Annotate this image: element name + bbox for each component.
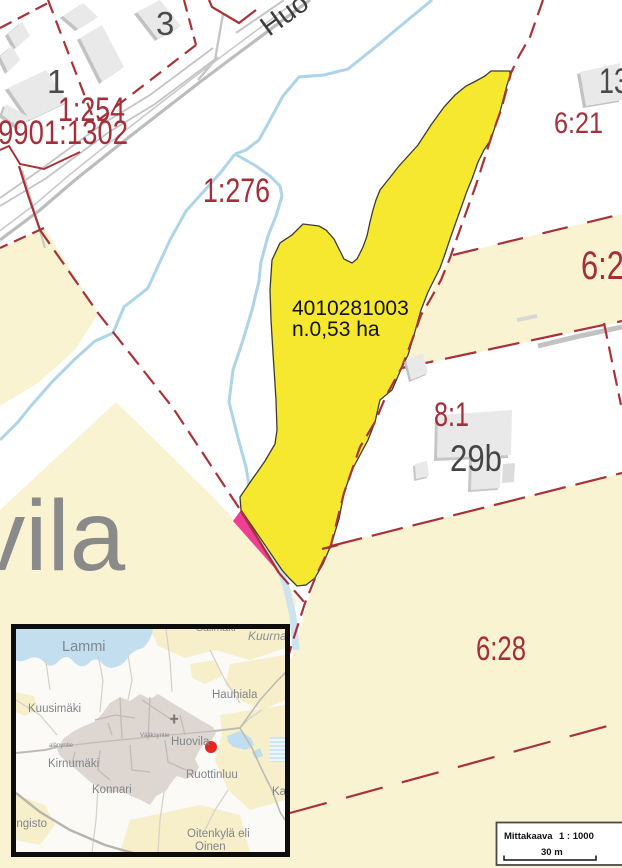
svg-text:1:276: 1:276 [203,172,270,210]
svg-text:Lammi: Lammi [62,639,106,655]
svg-text:Oitenkylä eli: Oitenkylä eli [187,828,250,840]
svg-text:6:27: 6:27 [581,244,622,288]
svg-text:Hauhiala: Hauhiala [212,689,258,701]
svg-text:Oinen: Oinen [195,841,226,853]
svg-text:alänyntie: alänyntie [49,743,74,749]
svg-text:30 m: 30 m [541,847,563,858]
svg-text:1 : 1000: 1 : 1000 [559,831,594,842]
svg-text:Mittakaava: Mittakaava [504,831,553,842]
svg-text:Huovila: Huovila [171,736,210,748]
svg-text:3: 3 [156,5,174,42]
svg-text:29b: 29b [450,438,502,479]
svg-text:Kuusimäki: Kuusimäki [28,703,81,715]
svg-text:Vääksyntie: Vääksyntie [140,733,170,739]
svg-text:Ruottinluu: Ruottinluu [186,769,238,781]
svg-text:9901:1302: 9901:1302 [0,114,128,152]
svg-text:Konnari: Konnari [92,784,132,796]
svg-text:8:1: 8:1 [434,396,469,434]
svg-text:13: 13 [599,62,622,101]
svg-text:Kirnumäki: Kirnumäki [48,758,99,770]
svg-text:uovila: uovila [0,480,126,592]
svg-text:6:28: 6:28 [476,630,526,668]
svg-text:4010281003: 4010281003 [292,297,409,320]
svg-text:6:21: 6:21 [554,107,603,140]
svg-text:n.0,53 ha: n.0,53 ha [292,318,380,341]
